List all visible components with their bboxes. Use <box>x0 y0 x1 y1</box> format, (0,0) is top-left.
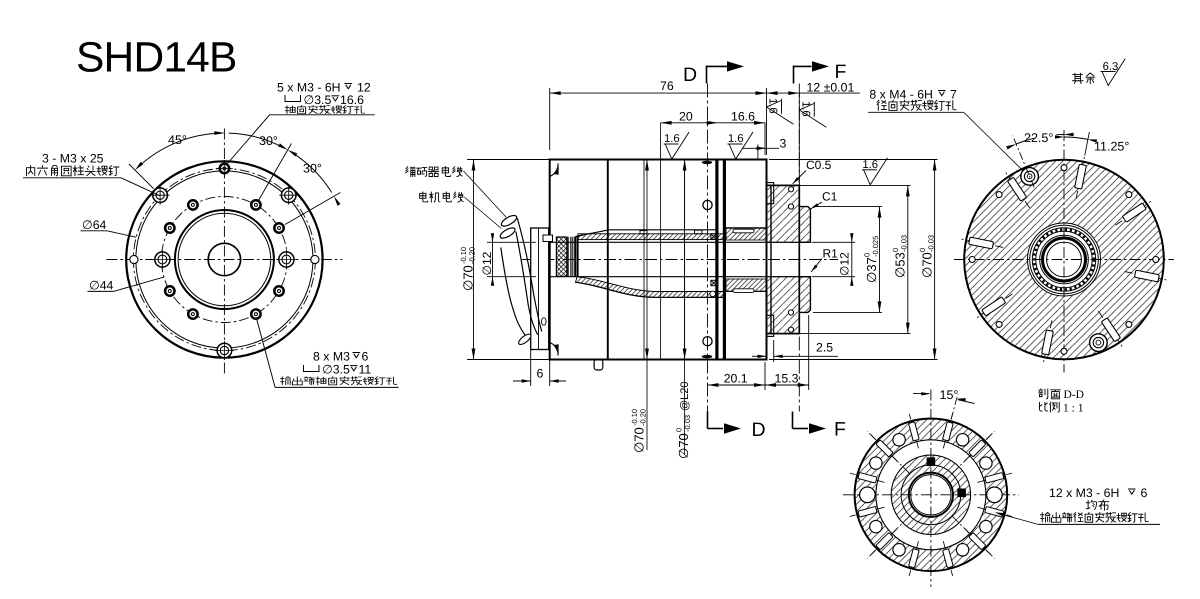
svg-text:1.6: 1.6 <box>728 133 744 145</box>
svg-text:30°: 30° <box>303 162 322 176</box>
svg-text:∅53: ∅53 <box>893 252 908 278</box>
svg-text:11.25°: 11.25° <box>1094 140 1129 154</box>
svg-text:16.6: 16.6 <box>731 110 755 124</box>
svg-text:3 - M3 x 25: 3 - M3 x 25 <box>42 152 104 166</box>
svg-text:1.6: 1.6 <box>664 133 680 145</box>
svg-text:1.6: 1.6 <box>862 159 878 171</box>
svg-text:D: D <box>752 419 766 441</box>
svg-text:-0.20: -0.20 <box>468 247 477 264</box>
svg-text:∅12: ∅12 <box>838 252 852 276</box>
svg-text:∅64: ∅64 <box>82 218 107 232</box>
svg-text:∅70: ∅70 <box>632 427 647 453</box>
svg-text:C1: C1 <box>822 190 838 204</box>
svg-text:15°: 15° <box>940 388 959 402</box>
svg-text:-0.025: -0.025 <box>871 236 880 257</box>
svg-text:∅37: ∅37 <box>864 257 879 283</box>
svg-text:∅3.5: ∅3.5 <box>304 93 332 107</box>
svg-text:@L20: @L20 <box>679 381 691 411</box>
svg-text:76: 76 <box>660 79 674 93</box>
svg-text:3: 3 <box>780 137 787 151</box>
svg-text:6: 6 <box>362 350 369 364</box>
svg-text:2.5: 2.5 <box>816 341 833 355</box>
svg-text:F: F <box>835 61 847 83</box>
svg-text:7: 7 <box>950 88 957 102</box>
svg-text:1.6: 1.6 <box>767 98 779 114</box>
svg-text:-0.03: -0.03 <box>683 415 692 432</box>
svg-text:12 x M3 - 6H: 12 x M3 - 6H <box>1049 486 1119 500</box>
svg-text:6: 6 <box>537 367 544 381</box>
svg-text:∅44: ∅44 <box>89 279 114 293</box>
svg-text:-0.03: -0.03 <box>900 235 909 252</box>
svg-text:∅70: ∅70 <box>920 252 935 278</box>
svg-text:∅70: ∅70 <box>461 265 476 291</box>
svg-text:∅3.5: ∅3.5 <box>322 363 350 377</box>
svg-text:12 ±0.01: 12 ±0.01 <box>807 81 855 95</box>
svg-text:16.6: 16.6 <box>340 93 364 107</box>
svg-text:6: 6 <box>1141 486 1148 500</box>
svg-text:20.1: 20.1 <box>724 372 748 386</box>
svg-text:R1: R1 <box>823 247 839 261</box>
svg-text:8 x M3: 8 x M3 <box>313 350 350 364</box>
svg-text:11: 11 <box>359 363 372 377</box>
svg-text:-0.03: -0.03 <box>927 235 936 252</box>
svg-text:∅70: ∅70 <box>676 433 691 459</box>
svg-text:SHD14B: SHD14B <box>76 35 237 82</box>
svg-text:30°: 30° <box>259 134 278 148</box>
svg-text:D: D <box>683 64 697 86</box>
svg-text:D-D: D-D <box>1064 389 1084 401</box>
svg-text:F: F <box>834 419 846 441</box>
svg-text:C0.5: C0.5 <box>806 158 832 172</box>
svg-text:8 x M4 - 6H: 8 x M4 - 6H <box>869 88 933 102</box>
svg-text:1.6: 1.6 <box>800 101 812 117</box>
svg-text:45°: 45° <box>168 133 187 147</box>
svg-text:∅12: ∅12 <box>480 251 494 275</box>
svg-text:-0.20: -0.20 <box>639 409 648 426</box>
svg-text:15.3: 15.3 <box>775 372 799 386</box>
svg-text:1 : 1: 1 : 1 <box>1063 403 1084 415</box>
svg-text:22.5°: 22.5° <box>1024 131 1053 145</box>
svg-text:20: 20 <box>679 110 693 124</box>
